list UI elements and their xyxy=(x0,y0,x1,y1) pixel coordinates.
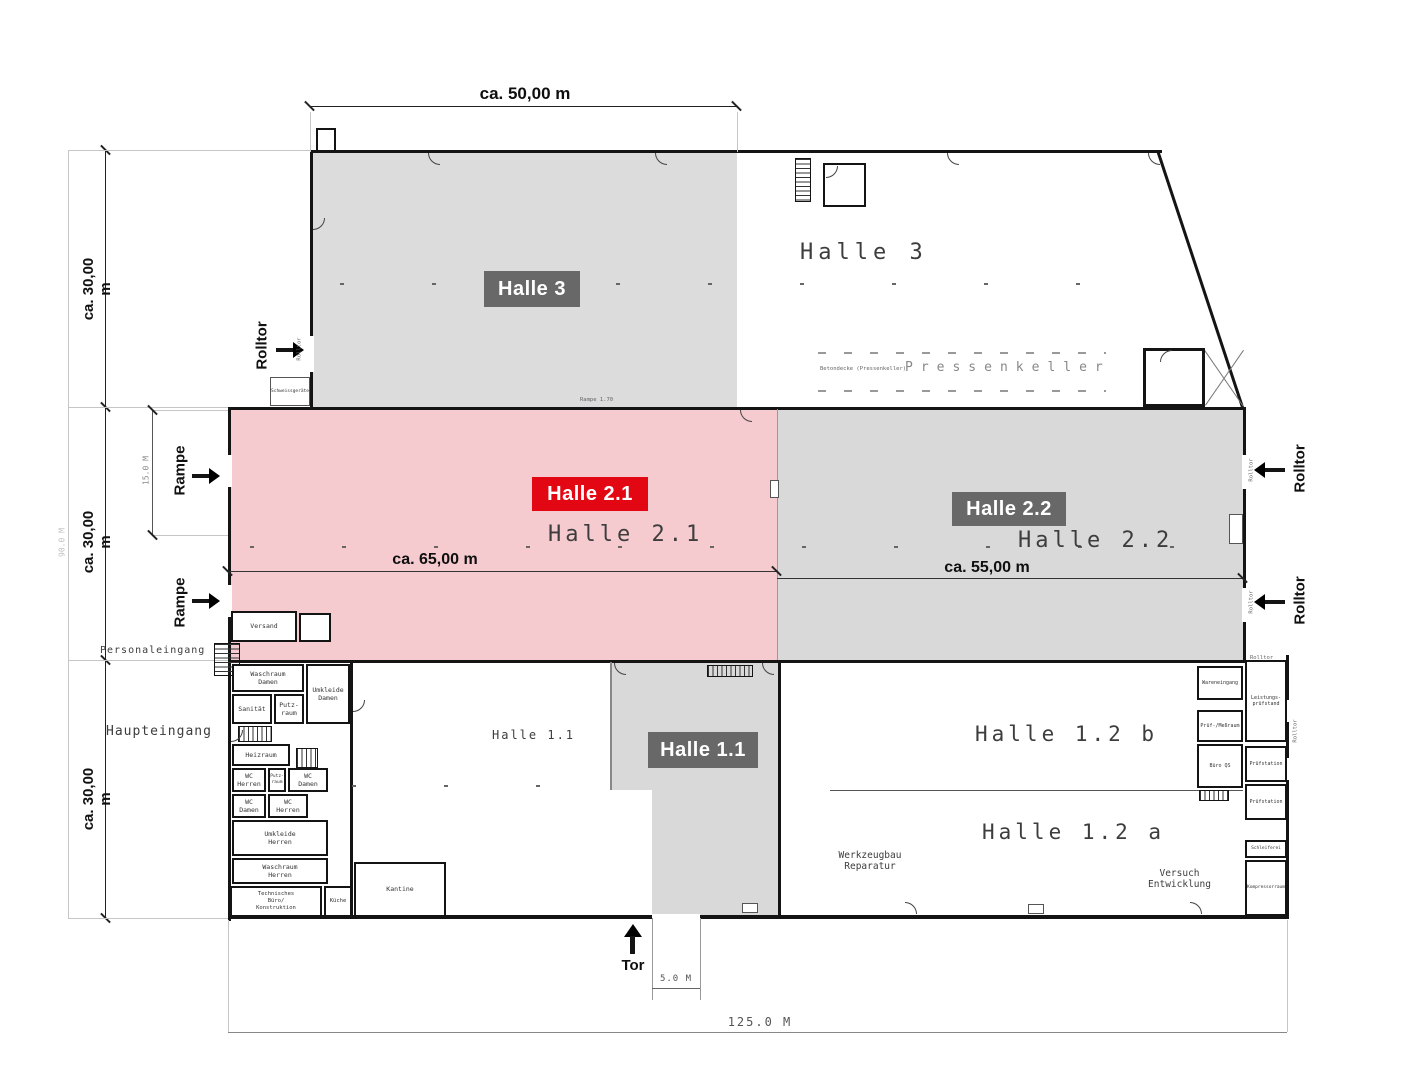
room-wc-damen-1: WC Damen xyxy=(288,768,328,792)
pruef-messraum-label: Prüf-/Meßraum xyxy=(1200,723,1239,729)
schleiferei-label: Schleiferei xyxy=(1251,846,1281,852)
rolltor-left-arrow-shaft xyxy=(276,348,294,352)
werkzeugbau-label: Werkzeugbau Reparatur xyxy=(820,850,920,872)
wc-herren-1-label: WC Herren xyxy=(237,772,260,788)
room-leistungspruefstand: Leistungs- prüfstand xyxy=(1245,660,1287,742)
rolltor-right-arrow-2-head xyxy=(1254,594,1265,610)
rolltor-right-wall-text-1: Rolltor xyxy=(1249,458,1255,481)
halle11-stairs xyxy=(707,665,753,677)
rolltor-gap-r2 xyxy=(1242,588,1247,622)
band3-top-wall xyxy=(228,660,1289,663)
rampe-arrow-2-shaft xyxy=(192,599,210,603)
tor-dim-line xyxy=(652,988,700,989)
door-arc-4 xyxy=(1148,153,1160,165)
halle22-script: Halle 2.2 xyxy=(1018,528,1173,553)
office-right-wall xyxy=(350,660,353,918)
pressenkeller-label: Pressenkeller xyxy=(905,360,1111,375)
versand-annex-room xyxy=(299,613,331,642)
h22-dim-line xyxy=(777,578,1243,579)
halle11-corridor-fill-lower xyxy=(652,790,778,916)
grid-dashes-halle3 xyxy=(340,283,1140,285)
rampe-dim-label: 15.0 M xyxy=(142,441,151,501)
rolltor-small-right-col: Rolltor xyxy=(1293,719,1299,742)
room-buero-qs: Büro QS xyxy=(1197,744,1243,788)
room-wc-herren-1: WC Herren xyxy=(232,768,266,792)
door-arc-10 xyxy=(905,902,917,914)
wc-damen-2-label: WC Damen xyxy=(239,798,259,814)
tor-label: Tor xyxy=(615,957,651,974)
tor-dim-right xyxy=(700,918,701,1000)
rolltor-right-arrow-2-shaft xyxy=(1265,600,1285,604)
halle11-corridor-wall xyxy=(610,662,612,790)
rolltor-gap-r1 xyxy=(1242,455,1247,489)
heizraum-label: Heizraum xyxy=(245,751,276,759)
floor-box-1 xyxy=(742,903,758,913)
bottom-ext-right xyxy=(1287,920,1288,1032)
pruefstation-2-label: Prüfstation xyxy=(1249,799,1282,805)
halle11-corridor-fill-upper xyxy=(612,662,780,790)
halle11-script: Halle 1.1 xyxy=(492,728,575,742)
door-arc-12 xyxy=(353,700,365,712)
rampe-label-1: Rampe xyxy=(172,439,189,503)
left-dim-label-3: ca. 30,00 m xyxy=(80,764,114,834)
sanitaet-label: Sanität xyxy=(238,705,265,713)
pressenkeller-dash-bottom xyxy=(818,390,1106,392)
betondecke-label: Betondecke (Pressenkeller) xyxy=(820,366,906,372)
halle21-script: Halle 2.1 xyxy=(548,522,703,547)
room-heizraum: Heizraum xyxy=(232,744,290,766)
wareneingang-label: Wareneingang xyxy=(1202,680,1238,686)
waschraum-herren-label: Waschraum Herren xyxy=(262,863,297,879)
versuch-label: Versuch Entwicklung xyxy=(1132,868,1227,890)
rampe-arrow-2-head xyxy=(209,593,220,609)
h22-dim-label: ca. 55,00 m xyxy=(912,559,1062,577)
rampe-arrow-1-head xyxy=(209,468,220,484)
rolltor-right-label-2: Rolltor xyxy=(1292,569,1309,633)
right-col-stairs xyxy=(1199,790,1229,801)
room-kantine: Kantine xyxy=(354,862,446,917)
halle22-wall-box xyxy=(1229,514,1243,544)
umkleide-herren-label: Umkleide Herren xyxy=(264,830,295,846)
room-pruefstation-2: Prüfstation xyxy=(1245,784,1287,820)
halle11-badge: Halle 1.1 xyxy=(648,732,758,768)
tor-dim-label: 5.0 M xyxy=(652,974,700,984)
pruefstation-1-label: Prüfstation xyxy=(1249,761,1282,767)
wc-damen-1-label: WC Damen xyxy=(298,772,318,788)
umkleide-damen-label: Umkleide Damen xyxy=(312,686,343,702)
grid-dashes-halle11 xyxy=(352,785,610,787)
kantine-label: Kantine xyxy=(386,885,413,893)
halle12a-script: Halle 1.2 a xyxy=(982,820,1165,844)
bottom-ext-left xyxy=(228,920,229,1032)
rampe-label-2: Rampe xyxy=(172,571,189,635)
room-waschraum-damen: Waschraum Damen xyxy=(232,664,304,692)
halle12b-script: Halle 1.2 b xyxy=(975,722,1158,746)
top-dim-label: ca. 50,00 m xyxy=(430,84,620,104)
versand-room: Versand xyxy=(231,611,297,642)
bottom-dim-line xyxy=(228,1032,1287,1033)
schweissgeraete-room: Schweissgeräte xyxy=(270,377,310,406)
room-umkleide-herren: Umkleide Herren xyxy=(232,820,328,856)
left-total-label: 90.0 M xyxy=(58,515,67,571)
conn-y660 xyxy=(68,660,228,661)
haupteingang-label: Haupteingang xyxy=(106,724,212,739)
top-dim-line xyxy=(310,106,737,107)
divider-wall-box xyxy=(770,480,779,498)
rampe-dim-line xyxy=(152,410,153,535)
entrance-stairs-1 xyxy=(238,726,272,742)
h21-dim-line xyxy=(228,571,777,572)
rampe170-label: Rampe 1.70 xyxy=(580,397,613,403)
room-wc-damen-2: WC Damen xyxy=(232,794,266,818)
rolltor-left-wall-text: Rolltor xyxy=(297,337,303,360)
rolltor-gap-halle3 xyxy=(309,336,314,372)
kueche-label: Küche xyxy=(330,898,347,905)
room-kompressorraum: Kompressorraum xyxy=(1245,860,1287,916)
wc-herren-2-label: WC Herren xyxy=(276,798,299,814)
halle21-22-divider xyxy=(777,409,778,660)
halle3-badge: Halle 3 xyxy=(484,271,580,307)
schweissgeraete-label: Schweissgeräte xyxy=(271,389,309,395)
halle21-badge: Halle 2.1 xyxy=(532,477,648,511)
buero-qs-label: Büro QS xyxy=(1209,763,1230,769)
door-arc-3 xyxy=(947,153,959,165)
rampe-dim-conn-top xyxy=(152,410,228,411)
rampe-dim-conn-bottom xyxy=(152,535,228,536)
rolltor-left-label: Rolltor xyxy=(254,314,271,378)
waschraum-damen-label: Waschraum Damen xyxy=(250,670,285,686)
kompressorraum-label: Kompressorraum xyxy=(1247,885,1285,891)
rolltor-right-arrow-1-head xyxy=(1254,462,1265,478)
tor-arrow-shaft xyxy=(630,936,635,954)
top-ext-left xyxy=(310,112,311,152)
room-sanitaet: Sanität xyxy=(232,694,272,724)
versand-label: Versand xyxy=(250,622,277,630)
personaleingang-label: Personaleingang xyxy=(100,645,205,656)
bottom-dim-label: 125.0 M xyxy=(690,1015,830,1029)
room-techn-buero: Technisches Büro/ Konstruktion xyxy=(230,886,322,917)
roof-protrusion-room xyxy=(316,128,336,152)
rampe-gap-1 xyxy=(227,455,232,487)
techn-buero-label: Technisches Büro/ Konstruktion xyxy=(256,891,296,912)
room-putzraum-klein: Putz- raum xyxy=(274,694,304,724)
room-putzraum: Putz- raum xyxy=(268,768,286,792)
h21-dim-label: ca. 65,00 m xyxy=(360,551,510,569)
floor-box-2 xyxy=(1028,904,1044,914)
room-pruef-messraum: Prüf-/Meßraum xyxy=(1197,710,1243,742)
rolltor-right-label-1: Rolltor xyxy=(1292,437,1309,501)
band3-left-wall xyxy=(228,660,231,921)
room-waschraum-herren: Waschraum Herren xyxy=(232,858,328,884)
band2-right-wall xyxy=(1243,407,1246,663)
room-schleiferei: Schleiferei xyxy=(1245,840,1287,858)
floor-plan: Betondecke (Pressenkeller) Pressenkeller… xyxy=(0,0,1417,1080)
putzraum-label: Putz- raum xyxy=(270,774,284,785)
entrance-stairs-2 xyxy=(296,748,318,768)
room-umkleide-damen: Umkleide Damen xyxy=(306,664,350,724)
left-dim-label-1: ca. 30,00 m xyxy=(80,254,114,324)
left-dim-label-2: ca. 30,00 m xyxy=(80,507,114,577)
top-ext-right xyxy=(737,112,738,152)
door-arc-11 xyxy=(1190,902,1202,914)
room-pruefstation-1: Prüfstation xyxy=(1245,746,1287,782)
halle12-divider-line xyxy=(830,790,1243,791)
room-kueche: Küche xyxy=(324,886,352,917)
halle22-badge: Halle 2.2 xyxy=(952,492,1066,526)
halle3-corner-room xyxy=(1143,348,1205,407)
pressenkeller-dash-top xyxy=(818,352,1106,354)
room-wareneingang: Wareneingang xyxy=(1197,666,1243,700)
conn-y918 xyxy=(68,918,228,919)
halle3-stairs xyxy=(795,158,811,202)
putzraum-klein-label: Putz- raum xyxy=(279,701,299,717)
halle11-right-wall xyxy=(778,660,781,918)
room-wc-herren-2: WC Herren xyxy=(268,794,308,818)
left-outer-line xyxy=(68,150,69,918)
rampe-arrow-1-shaft xyxy=(192,474,210,478)
band2-top-wall xyxy=(228,407,1246,410)
rolltor-right-wall-text-2: Rolltor xyxy=(1249,590,1255,613)
conn-y150 xyxy=(68,150,310,151)
halle3-script: Halle 3 xyxy=(800,240,928,265)
rolltor-right-arrow-1-shaft xyxy=(1265,468,1285,472)
leistungspruefstand-label: Leistungs- prüfstand xyxy=(1251,695,1281,708)
tor-gap xyxy=(652,914,700,920)
